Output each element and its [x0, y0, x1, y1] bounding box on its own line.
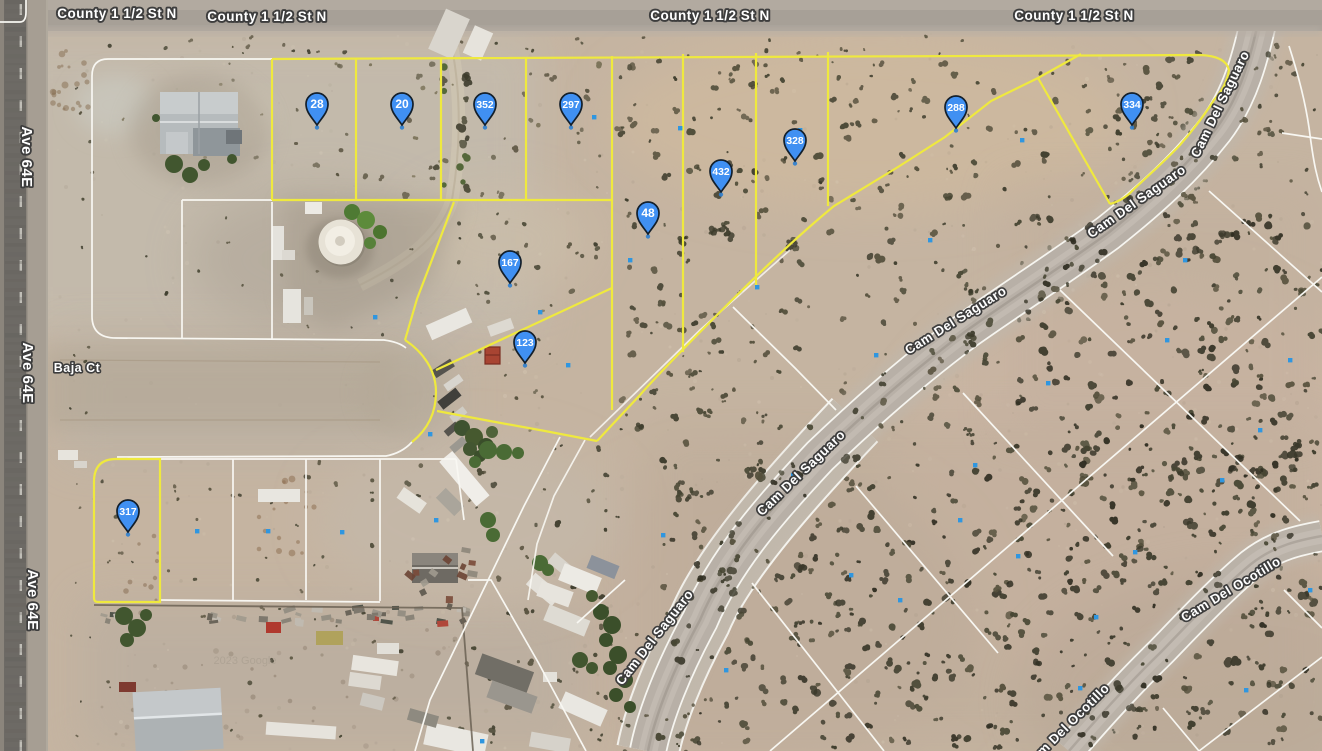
svg-text:48: 48 [641, 206, 655, 220]
svg-text:2023 Google: 2023 Google [214, 655, 277, 667]
svg-text:Ave 64E: Ave 64E [18, 126, 35, 187]
svg-text:123: 123 [516, 338, 534, 349]
svg-text:County 1 1/2 St N: County 1 1/2 St N [1014, 8, 1134, 23]
svg-text:County 1 1/2 St N: County 1 1/2 St N [57, 6, 177, 21]
svg-text:28: 28 [310, 97, 324, 111]
svg-text:20: 20 [395, 97, 409, 111]
svg-text:297: 297 [562, 100, 580, 111]
svg-text:328: 328 [786, 136, 804, 147]
svg-text:Baja Ct: Baja Ct [54, 361, 101, 375]
svg-text:County 1 1/2 St N: County 1 1/2 St N [207, 9, 327, 24]
svg-text:Ave 64E: Ave 64E [24, 569, 41, 630]
svg-text:167: 167 [501, 258, 519, 269]
svg-text:288: 288 [947, 103, 965, 114]
svg-text:352: 352 [476, 100, 494, 111]
svg-text:432: 432 [712, 167, 730, 178]
svg-text:Ave 64E: Ave 64E [19, 342, 36, 403]
svg-text:334: 334 [1123, 100, 1141, 111]
svg-text:317: 317 [119, 507, 137, 518]
svg-text:County 1 1/2 St N: County 1 1/2 St N [650, 8, 770, 23]
